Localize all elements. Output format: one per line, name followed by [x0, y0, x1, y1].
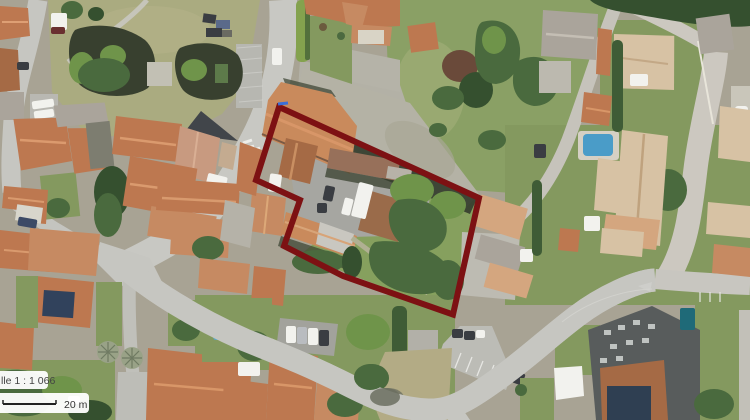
svg-text:20 m: 20 m: [64, 399, 88, 411]
svg-text:lle 1 : 1 066: lle 1 : 1 066: [1, 375, 55, 387]
